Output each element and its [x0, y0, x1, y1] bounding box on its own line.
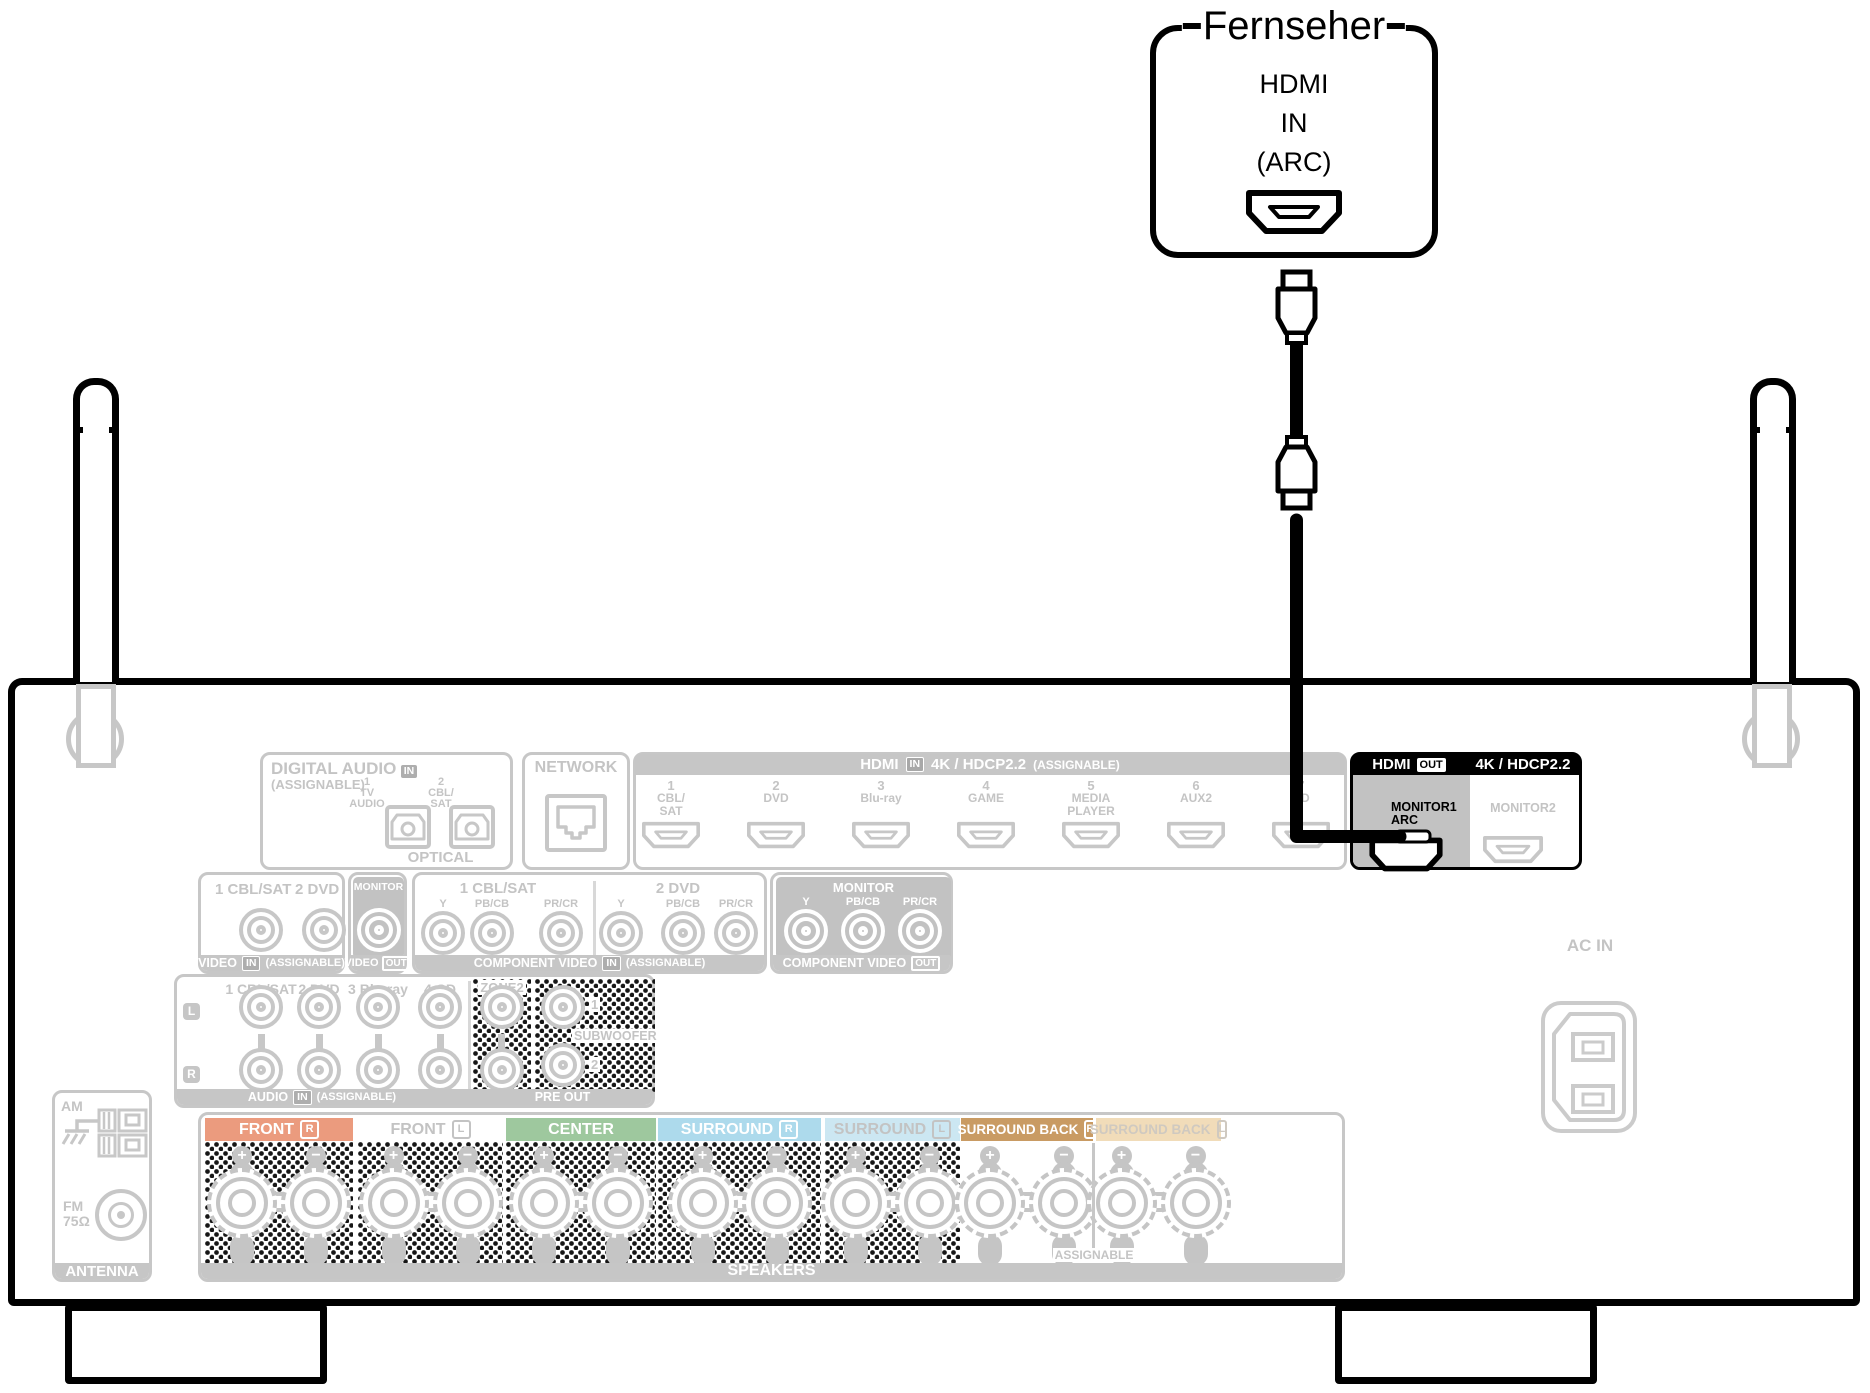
rca-jack [714, 911, 758, 955]
rca-jack [421, 911, 465, 955]
speaker-binding-post [821, 1168, 891, 1238]
am-label: AM [61, 1098, 83, 1114]
tv-title-wrap: Fernseher [1182, 4, 1406, 48]
tv-arc-label: (ARC) [1156, 143, 1432, 182]
tv-hdmi-label: HDMI [1156, 65, 1432, 104]
speaker-binding-post [207, 1168, 277, 1238]
right-channel-badge: R [183, 1066, 200, 1083]
rca-jack [302, 908, 346, 952]
rca-jack [841, 909, 885, 953]
hdmi-port-icon [745, 821, 807, 850]
tv-hdmi-port-icon [1244, 189, 1344, 235]
receiver-foot-left [65, 1304, 327, 1384]
terminal-tab [606, 1234, 630, 1266]
video-out-footer: VIDEO [344, 957, 378, 969]
component-in-group2-label: 2 DVD [628, 880, 728, 897]
digital-audio-title: DIGITAL AUDIO [271, 759, 396, 778]
digital-audio-section: DIGITAL AUDIO IN (ASSIGNABLE) 1 TV AUDIO… [260, 752, 513, 870]
speaker-label: CENTER [548, 1121, 614, 1139]
preout-footer: PRE OUT [535, 1090, 591, 1104]
rca-jack [418, 1048, 462, 1092]
ground-icon [59, 1115, 101, 1151]
rca-jack [297, 1048, 341, 1092]
optical-port-icon [449, 805, 495, 849]
tv-title: Fernseher [1201, 4, 1387, 48]
col-pr-label: PR/CR [714, 898, 758, 910]
speaker-binding-post [955, 1168, 1025, 1238]
rca-jack [784, 909, 828, 953]
col-pr-label: PR/CR [898, 896, 942, 908]
video-in-footer-assignable: (ASSIGNABLE) [265, 957, 344, 969]
rca-jack [470, 911, 514, 955]
hdmi-port-icon [955, 821, 1017, 850]
component-out-label: MONITOR [776, 877, 951, 895]
wifi-antenna-left [73, 378, 119, 682]
rca-jack [356, 985, 400, 1029]
hdmi-in-spec: 4K / HDCP2.2 [931, 756, 1026, 773]
terminal-tab [918, 1234, 942, 1266]
rca-jack [661, 911, 705, 955]
ethernet-port-icon [544, 793, 608, 853]
terminal-tab [230, 1234, 254, 1266]
speaker-label: FRONT [390, 1121, 445, 1139]
speaker-front-r-header: FRONT R [205, 1118, 353, 1141]
hdmi-input-name: GAME [946, 792, 1026, 805]
speaker-surround-l: SURROUND L + − [825, 1117, 960, 1280]
speaker-surround-l-header: SURROUND L [825, 1118, 960, 1141]
video-out-monitor-panel: MONITOR [353, 877, 404, 959]
rca-jack [541, 1043, 585, 1087]
component-in-footer-badge: IN [602, 956, 621, 971]
terminal-tab [456, 1234, 480, 1266]
rca-jack [418, 985, 462, 1029]
rca-jack [239, 1048, 283, 1092]
col-pr-label: PR/CR [539, 898, 583, 910]
speaker-front-l: FRONT L + − [358, 1117, 503, 1280]
antenna-mount-left [76, 684, 116, 768]
subwoofer2-num: 2 [589, 1057, 600, 1072]
antenna-section: AM FM 75Ω ANTENNA [52, 1090, 152, 1282]
speaker-front-r: FRONT R + − [205, 1117, 353, 1280]
speaker-surround-r: SURROUND R + − [658, 1117, 821, 1280]
video-in-footer: VIDEO [198, 956, 237, 970]
terminal-tab [304, 1234, 328, 1266]
speaker-surround-r-header: SURROUND R [658, 1118, 821, 1141]
terminal-tab [1184, 1234, 1208, 1266]
connection-diagram: Fernseher HDMI IN (ARC) DIGITAL AUDIO I [0, 0, 1870, 1393]
surround-back-divider [1092, 1143, 1095, 1255]
component-video-out-section: MONITOR Y PB/CB PR/CR COMPONENT VIDEO OU… [770, 872, 953, 974]
ac-inlet-icon [1540, 1000, 1638, 1134]
speaker-binding-post [895, 1168, 965, 1238]
speaker-center-header: CENTER [506, 1118, 656, 1141]
terminal-tab [532, 1234, 556, 1266]
video-in-label1: 1 CBL/SAT [215, 881, 291, 898]
network-title: NETWORK [525, 759, 627, 777]
rca-jack [480, 1048, 524, 1092]
terminal-tab [382, 1234, 406, 1266]
monitor1-highlight: MONITOR1 ARC [1353, 775, 1470, 867]
tv-in-label: IN [1156, 104, 1432, 143]
audio-in-footer-badge: IN [293, 1090, 312, 1105]
terminal-tab [978, 1234, 1002, 1266]
speaker-label: SURROUND BACK [1090, 1122, 1211, 1137]
hdmi-out-title: HDMI [1372, 756, 1410, 773]
col-pb-label: PB/CB [661, 898, 705, 910]
speaker-label: SURROUND [834, 1121, 926, 1139]
speaker-binding-post [1161, 1168, 1231, 1238]
antenna-footer: ANTENNA [65, 1263, 138, 1280]
rca-jack [297, 985, 341, 1029]
rca-jack [599, 911, 643, 955]
speakers-section: FRONT R + − FRONT L + − [198, 1112, 1345, 1282]
audio-in-footer: AUDIO [248, 1090, 288, 1104]
optical-label: OPTICAL [378, 849, 503, 866]
speaker-binding-post [509, 1168, 579, 1238]
rca-jack [898, 909, 942, 953]
hdmi-input-name2: PLAYER [1051, 805, 1131, 818]
hdmi-input-name: CD [1261, 792, 1341, 805]
speaker-binding-post [1087, 1168, 1157, 1238]
optical-port-icon [385, 805, 431, 849]
rca-jack [541, 985, 585, 1029]
speaker-binding-post [433, 1168, 503, 1238]
rca-jack [357, 908, 401, 952]
speaker-label: SURROUND [681, 1121, 773, 1139]
rca-jack [356, 1048, 400, 1092]
speaker-surround-back-l-header: SURROUND BACK L [1096, 1118, 1221, 1141]
speaker-binding-post [583, 1168, 653, 1238]
component-in-footer: COMPONENT VIDEO [474, 956, 598, 970]
hdmi-out-spec: 4K / HDCP2.2 [1466, 756, 1580, 773]
hdmi-port-icon [640, 821, 702, 850]
speakers-assignable: ASSIGNABLE [1034, 1248, 1154, 1262]
component-video-in-section: 1 CBL/SAT 2 DVD Y PB/CB PR/CR Y PB/CB PR… [412, 872, 767, 974]
speaker-binding-post [281, 1168, 351, 1238]
antenna-mount-right [1752, 684, 1792, 768]
terminal-tab [691, 1234, 715, 1266]
video-out-footer-badge: OUT [382, 956, 411, 971]
receiver-foot-right [1335, 1304, 1597, 1384]
rca-jack [539, 911, 583, 955]
hdmi-input-name: AUX2 [1156, 792, 1236, 805]
hdmi-monitor1-port-icon [1367, 837, 1445, 873]
component-out-footer-badge: OUT [911, 956, 940, 971]
left-channel-badge: L [183, 1003, 200, 1020]
component-in-footer-assignable: (ASSIGNABLE) [626, 957, 705, 969]
group-divider [593, 881, 596, 957]
hdmi-port-icon [1270, 821, 1332, 850]
rca-jack [480, 985, 524, 1029]
component-out-monitor-panel: MONITOR Y PB/CB PR/CR [776, 877, 951, 959]
am-terminal-icon [97, 1107, 149, 1159]
speakers-footer: SPEAKERS [727, 1262, 815, 1280]
hdmi-out-badge: OUT [1417, 758, 1446, 772]
terminal-tab [844, 1234, 868, 1266]
col-y-label: Y [786, 896, 826, 908]
fm-ohm-label: 75Ω [63, 1214, 90, 1229]
speaker-label: SURROUND BACK [958, 1122, 1079, 1137]
channel-badge: L [932, 1120, 951, 1139]
network-section: NETWORK [522, 752, 630, 870]
fm-coax-jack [95, 1189, 147, 1241]
wifi-antenna-right [1750, 378, 1796, 682]
speaker-label: FRONT [239, 1121, 294, 1139]
ac-in-label: AC IN [1540, 936, 1640, 956]
component-out-footer: COMPONENT VIDEO [783, 956, 907, 970]
tv-title-dash-right [1387, 23, 1405, 29]
speaker-binding-post [359, 1168, 429, 1238]
channel-badge: R [779, 1120, 798, 1139]
hdmi-input-name: Blu-ray [841, 792, 921, 805]
channel-badge: R [300, 1120, 319, 1139]
speaker-surround-back-r-header: SURROUND BACK R [961, 1118, 1093, 1141]
section-divider [468, 981, 471, 1091]
monitor1-arc-label: ARC [1391, 814, 1457, 827]
component-in-group1-label: 1 CBL/SAT [448, 880, 548, 897]
channel-badge: L [1217, 1120, 1228, 1139]
video-in-footer-badge: IN [242, 956, 261, 971]
rca-jack [239, 908, 283, 952]
speaker-binding-post [668, 1168, 738, 1238]
col-pb-label: PB/CB [841, 896, 885, 908]
col-y-label: Y [601, 898, 641, 910]
hdmi-monitor2-port-icon [1481, 835, 1545, 865]
monitor2-label: MONITOR2 [1478, 801, 1568, 815]
fm-label: FM [63, 1199, 90, 1214]
speaker-binding-post [742, 1168, 812, 1238]
audio-in-footer-assignable: (ASSIGNABLE) [317, 1091, 396, 1103]
video-out-section: MONITOR VIDEO OUT [348, 872, 407, 974]
hdmi-port-icon [1165, 821, 1227, 850]
hdmi-port-icon [1060, 821, 1122, 850]
speaker-front-l-header: FRONT L [358, 1118, 503, 1141]
video-in-section: 1 CBL/SAT 2 DVD VIDEO IN (ASSIGNABLE) [198, 872, 345, 974]
col-pb-label: PB/CB [470, 898, 514, 910]
hdmi-in-assignable: (ASSIGNABLE) [1033, 758, 1120, 772]
hdmi-out-section: HDMI OUT 4K / HDCP2.2 MONITOR1 ARC MONIT… [1350, 752, 1582, 870]
subwoofer-label: SUBWOOFER [572, 1029, 659, 1043]
audio-preout-section: 1 CBL/SAT 2 DVD 3 Blu-ray 4 CD L R ZONE2… [174, 974, 655, 1108]
hdmi-in-section: HDMI IN 4K / HDCP2.2 (ASSIGNABLE) 1 CBL/… [633, 752, 1347, 870]
channel-badge: L [452, 1120, 471, 1139]
hdmi-in-badge: IN [906, 757, 925, 772]
col-y-label: Y [423, 898, 463, 910]
speaker-center: CENTER + − [506, 1117, 656, 1280]
tv-box: Fernseher HDMI IN (ARC) [1150, 25, 1438, 258]
rca-jack [239, 985, 283, 1029]
hdmi-in-title: HDMI [860, 756, 898, 773]
hdmi-input-name: DVD [736, 792, 816, 805]
video-out-label: MONITOR [353, 877, 404, 893]
tv-title-dash-left [1183, 23, 1201, 29]
subwoofer1-num: 1 [589, 997, 600, 1012]
hdmi-port-icon [850, 821, 912, 850]
video-in-label2: 2 DVD [295, 881, 339, 898]
hdmi-input-name2: SAT [631, 805, 711, 818]
